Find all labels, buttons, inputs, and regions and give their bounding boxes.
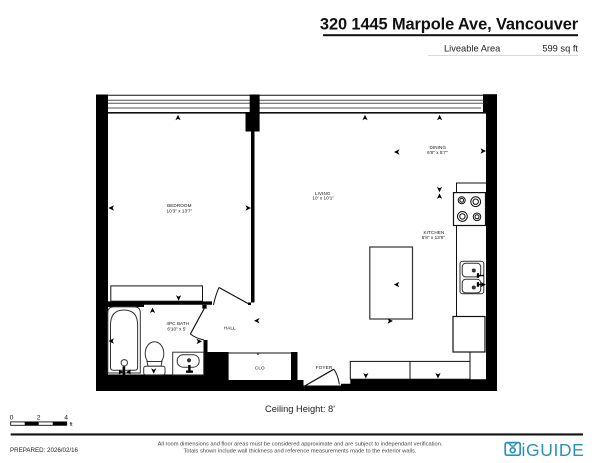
svg-text:iGUIDE: iGUIDE bbox=[522, 440, 585, 460]
svg-text:Ceiling Height: 8': Ceiling Height: 8' bbox=[265, 404, 335, 414]
svg-text:10' x 10'1": 10' x 10'1" bbox=[312, 195, 334, 200]
svg-text:Totals shown include wall thic: Totals shown include wall thickness and … bbox=[184, 448, 417, 454]
svg-text:Liveable Area: Liveable Area bbox=[444, 44, 501, 54]
svg-text:320 1445 Marpole Ave, Vancouve: 320 1445 Marpole Ave, Vancouver bbox=[320, 16, 579, 34]
svg-text:599 sq ft: 599 sq ft bbox=[542, 44, 578, 54]
svg-text:KITCHEN: KITCHEN bbox=[423, 230, 444, 235]
svg-text:CLO: CLO bbox=[255, 366, 265, 371]
svg-text:0: 0 bbox=[10, 415, 14, 422]
svg-text:6'8" x 5'7": 6'8" x 5'7" bbox=[427, 150, 448, 155]
svg-text:6'10" x 5': 6'10" x 5' bbox=[167, 326, 186, 331]
svg-text:6'8" x 13'6": 6'8" x 13'6" bbox=[422, 235, 446, 240]
svg-text:HALL: HALL bbox=[224, 326, 236, 331]
svg-text:DINING: DINING bbox=[429, 145, 446, 150]
svg-text:All room dimensions and floor: All room dimensions and floor areas must… bbox=[158, 441, 443, 447]
svg-text:PREPARED: 2026/02/16: PREPARED: 2026/02/16 bbox=[10, 447, 79, 454]
svg-text:FOYER: FOYER bbox=[316, 365, 333, 370]
svg-text:4: 4 bbox=[64, 415, 68, 422]
svg-text:BEDROOM: BEDROOM bbox=[167, 203, 192, 208]
svg-text:4PC BATH: 4PC BATH bbox=[166, 321, 189, 326]
svg-text:ft: ft bbox=[70, 422, 74, 428]
svg-text:2: 2 bbox=[37, 415, 41, 422]
svg-text:10'3" x 13'7": 10'3" x 13'7" bbox=[166, 208, 192, 213]
